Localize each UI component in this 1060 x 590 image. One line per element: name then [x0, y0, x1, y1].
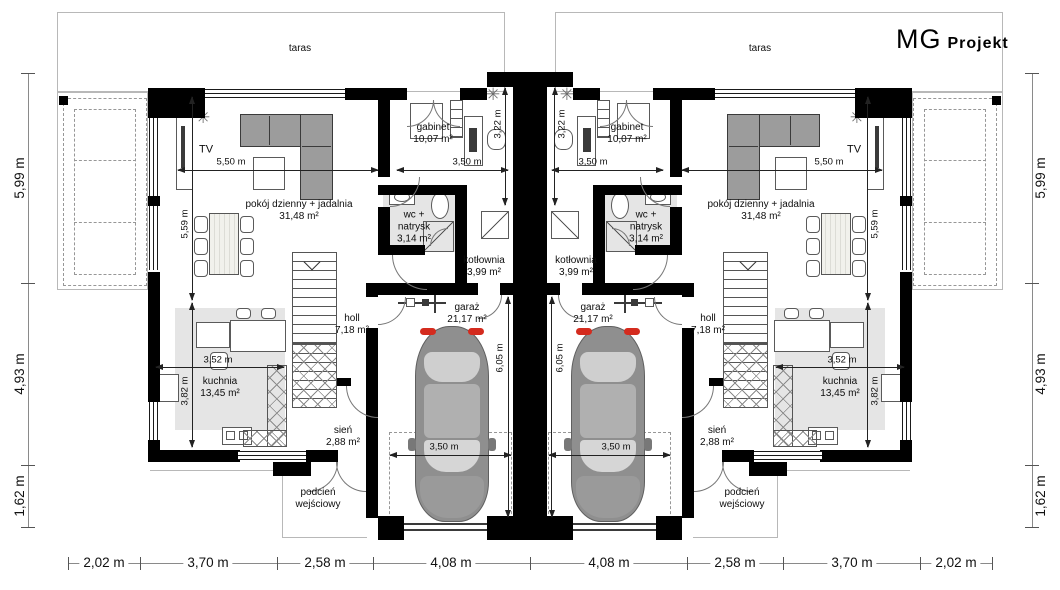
dim-label: 3,52 m: [203, 354, 232, 365]
kitchen-counter: [830, 322, 864, 348]
dim-label: 6,05 m: [554, 343, 565, 372]
bar-stool: [784, 308, 799, 319]
wall: [682, 328, 694, 518]
heater-star-icon: ✳: [560, 86, 574, 103]
wall: [656, 516, 682, 540]
dim-tick: [1025, 73, 1039, 74]
computer: [583, 128, 591, 152]
dim-label: 3,22 m: [556, 109, 567, 138]
wall: [460, 88, 487, 100]
bottom-dim-label: 3,70 m: [183, 555, 232, 571]
dim-tick: [140, 557, 141, 570]
gas-meter-icon: [631, 299, 638, 306]
wall: [378, 100, 390, 177]
garage-door: [402, 529, 487, 531]
garage-door: [573, 523, 658, 525]
window: [149, 118, 158, 196]
room-label-taras: taras: [749, 43, 771, 55]
sofa-seam: [302, 146, 331, 147]
car-taillight: [468, 328, 484, 335]
dining-chair: [194, 238, 208, 255]
dimension-line: [390, 455, 511, 456]
dining-chair: [852, 260, 866, 277]
room-label-holl: holl7,18 m²: [691, 313, 725, 337]
unit-graphics: ✳ ✳: [530, 0, 1060, 590]
dining-chair: [194, 216, 208, 233]
wall: [345, 88, 407, 100]
wall: [378, 207, 390, 247]
side-dim-label: 4,93 m: [1033, 351, 1049, 396]
wall: [378, 245, 425, 255]
side-dim-label: 4,93 m: [12, 351, 28, 396]
dim-tick: [373, 557, 374, 570]
dim-label: 5,59 m: [179, 209, 190, 238]
room-label-kuchnia: kuchnia13,45 m²: [820, 376, 859, 400]
room-label-kotlownia: kotłownia3,99 m²: [555, 255, 597, 279]
window: [149, 402, 158, 440]
bar-stool: [809, 308, 824, 319]
wall: [148, 312, 160, 402]
dining-chair: [806, 260, 820, 277]
room-label-kotlownia: kotłownia3,99 m²: [463, 255, 505, 279]
dimension-line: [192, 303, 193, 447]
car-mirror: [408, 438, 416, 451]
bottom-dim-label: 2,58 m: [710, 555, 759, 571]
wall: [749, 462, 787, 476]
dim-tick: [21, 283, 35, 284]
sink-bowl: [226, 431, 235, 440]
sofa-seam: [269, 116, 270, 145]
dim-tick: [920, 557, 921, 570]
gas-meter-icon: [434, 292, 436, 313]
wall: [500, 283, 513, 295]
floor-plan-canvas: ✳ ✳: [0, 0, 1060, 590]
side-dim-line-left: [28, 73, 29, 527]
dim-tick: [21, 73, 35, 74]
coffee-table: [253, 157, 285, 190]
wall: [273, 462, 311, 476]
pergola-dashed-line: [924, 160, 986, 161]
computer: [469, 128, 477, 152]
dim-label: 3,82 m: [869, 376, 880, 405]
pergola-post: [59, 96, 68, 105]
dim-tick: [68, 557, 69, 570]
dining-chair: [194, 260, 208, 277]
window: [205, 89, 345, 98]
toilet: [611, 192, 629, 219]
wall: [378, 516, 404, 540]
dim-tick: [992, 557, 993, 570]
car-top-view: [415, 326, 489, 522]
mg-projekt-logo: MG Projekt: [896, 24, 1009, 55]
wall: [148, 450, 240, 462]
party-wall: [530, 72, 547, 530]
room-label-sien: sień2,88 m²: [326, 425, 360, 449]
unit-graphics: ✳ ✳: [0, 0, 530, 590]
side-dim-line-right: [1032, 73, 1033, 527]
wall: [306, 450, 338, 462]
room-label-garaz: garaż21,17 m²: [573, 302, 612, 326]
room-label-kuchnia: kuchnia13,45 m²: [200, 376, 239, 400]
dimension-line: [552, 170, 663, 171]
corner-sofa: [727, 114, 760, 200]
toilet: [431, 192, 449, 219]
burner-icon: [884, 390, 890, 396]
garage-door: [402, 523, 487, 525]
window: [238, 451, 306, 460]
bottom-dim-label: 3,70 m: [827, 555, 876, 571]
dimension-line: [867, 97, 868, 300]
window: [149, 206, 158, 270]
door-arc: [682, 386, 714, 418]
dimension-line: [156, 367, 284, 368]
car-roof: [424, 384, 480, 438]
corner-sofa: [300, 114, 333, 200]
pergola-dashed-line: [924, 222, 986, 223]
bar-stool: [261, 308, 276, 319]
stairs-lower-hatched: [723, 344, 768, 408]
pergola-post: [992, 96, 1001, 105]
room-label-pokoj: pokój dzienny + jadalnia31,48 m²: [245, 199, 352, 223]
gas-meter-icon: [624, 292, 626, 313]
stairs-lower-hatched: [292, 344, 337, 408]
window: [902, 118, 911, 196]
kitchen-island: [230, 320, 286, 352]
dim-tick: [1025, 283, 1039, 284]
car-mirror: [564, 438, 572, 451]
dim-tick: [1025, 465, 1039, 466]
dining-table: [821, 213, 851, 275]
bar-stool: [236, 308, 251, 319]
door-arc: [654, 297, 682, 325]
dim-label: 5,50 m: [216, 156, 245, 167]
wall: [487, 516, 530, 540]
wall: [337, 378, 351, 386]
dimension-line: [867, 303, 868, 447]
dim-tick: [530, 557, 531, 570]
wall: [709, 378, 723, 386]
sofa-seam: [790, 116, 791, 145]
car-mirror: [644, 438, 652, 451]
dim-label: 3,22 m: [492, 109, 503, 138]
dim-label: 3,82 m: [179, 376, 190, 405]
taras-outline: [57, 12, 505, 92]
sofa-seam: [729, 146, 758, 147]
wall: [366, 283, 378, 297]
pergola-dashed-line: [74, 160, 136, 161]
wall: [722, 450, 754, 462]
wall: [653, 88, 715, 100]
side-dim-label: 5,99 m: [12, 155, 28, 200]
bottom-dim-label: 4,08 m: [426, 555, 475, 571]
coffee-table: [775, 157, 807, 190]
boiler-symbol: [551, 211, 579, 239]
burner-icon: [161, 390, 167, 396]
car-rear-window: [580, 352, 636, 382]
dimension-line: [554, 88, 555, 205]
room-label-holl: holl7,18 m²: [335, 313, 369, 337]
dim-label: 6,05 m: [494, 343, 505, 372]
wall: [148, 272, 160, 314]
logo-projekt-text: Projekt: [948, 35, 1009, 53]
window: [715, 89, 855, 98]
burner-icon: [893, 378, 899, 384]
car-taillight: [576, 328, 592, 335]
car-mirror: [488, 438, 496, 451]
dim-tick: [21, 465, 35, 466]
dim-label: 3,52 m: [827, 354, 856, 365]
podcien-outline: [693, 537, 778, 538]
burner-icon: [161, 378, 167, 384]
wall: [855, 88, 912, 118]
burner-icon: [170, 390, 176, 396]
window: [902, 206, 911, 270]
car-top-view: [571, 326, 645, 522]
bottom-dim-label: 2,02 m: [79, 555, 128, 571]
dimension-line: [505, 88, 506, 205]
dining-chair: [240, 238, 254, 255]
tv-screen: [875, 126, 879, 168]
side-dim-label: 1,62 m: [1033, 473, 1049, 518]
dimension-line: [549, 455, 670, 456]
burner-icon: [884, 378, 890, 384]
room-label-pokoj: pokój dzienny + jadalnia31,48 m²: [707, 199, 814, 223]
door-arc: [346, 386, 378, 418]
room-label-wc: wc +natrysk3,14 m²: [629, 209, 663, 244]
dim-label: 5,59 m: [869, 209, 880, 238]
wall: [635, 245, 682, 255]
wall: [820, 450, 912, 462]
bottom-dim-label: 2,58 m: [300, 555, 349, 571]
room-label-garaz: garaż21,17 m²: [447, 302, 486, 326]
kitchen-island: [774, 320, 830, 352]
dining-chair: [806, 238, 820, 255]
dimension-line: [192, 97, 193, 300]
kitchen-counter: [196, 322, 230, 348]
room-label-podcien: podcieńwejściowy: [295, 487, 340, 511]
burner-icon: [893, 390, 899, 396]
dim-tick: [1025, 527, 1039, 528]
gas-meter-icon: [422, 299, 429, 306]
cabinet-hatched: [243, 430, 287, 447]
garage-door: [573, 529, 658, 531]
bottom-dim-label: 4,08 m: [584, 555, 633, 571]
window: [754, 451, 822, 460]
wall: [148, 88, 205, 118]
room-label-gabinet: gabinet10,07 m²: [413, 122, 452, 146]
wall: [366, 328, 378, 518]
wall: [670, 207, 682, 247]
room-label-podcien: podcieńwejściowy: [719, 487, 764, 511]
burner-icon: [170, 378, 176, 384]
car-roof: [580, 384, 636, 438]
side-dim-label: 1,62 m: [12, 473, 28, 518]
dining-chair: [240, 260, 254, 277]
window: [902, 402, 911, 440]
dim-label: 5,50 m: [814, 156, 843, 167]
car-rear-window: [424, 352, 480, 382]
car-taillight: [420, 328, 436, 335]
dimension-line: [551, 297, 552, 517]
gas-meter-icon: [406, 298, 415, 307]
dim-tick: [277, 557, 278, 570]
wall: [900, 196, 912, 206]
dim-tick: [687, 557, 688, 570]
door-arc: [378, 297, 406, 325]
dimension-line: [178, 170, 378, 171]
dining-chair: [852, 216, 866, 233]
dining-table: [209, 213, 239, 275]
tv-label: TV: [199, 144, 213, 157]
wall: [573, 88, 600, 100]
dim-label: 3,50 m: [452, 156, 481, 167]
wall: [455, 185, 467, 253]
wall: [148, 196, 160, 206]
tv-screen: [181, 126, 185, 168]
cabinet-hatched: [773, 430, 817, 447]
room-label-gabinet: gabinet10,07 m²: [607, 122, 646, 146]
wall: [670, 100, 682, 177]
boiler-symbol: [481, 211, 509, 239]
heater-star-icon: ✳: [486, 86, 500, 103]
party-wall: [513, 72, 530, 530]
dimension-line: [508, 297, 509, 517]
logo-mg-text: MG: [896, 24, 942, 55]
car-taillight: [624, 328, 640, 335]
dimension-line: [776, 367, 904, 368]
wall: [530, 516, 573, 540]
tv-label: TV: [847, 144, 861, 157]
dimension-line: [397, 170, 508, 171]
dim-label: 3,50 m: [578, 156, 607, 167]
wall: [900, 272, 912, 314]
pergola-dashed-inner: [74, 109, 136, 275]
pergola-dashed-line: [74, 222, 136, 223]
dining-chair: [852, 238, 866, 255]
gas-meter-icon: [645, 298, 654, 307]
room-label-sien: sień2,88 m²: [700, 425, 734, 449]
room-label-wc: wc +natrysk3,14 m²: [397, 209, 431, 244]
dim-tick: [21, 527, 35, 528]
room-label-taras: taras: [289, 43, 311, 55]
wall: [547, 283, 560, 295]
wall: [682, 283, 694, 297]
dim-tick: [783, 557, 784, 570]
dimension-line: [682, 170, 882, 171]
wall: [900, 312, 912, 402]
pergola-dashed-inner: [924, 109, 986, 275]
dim-label: 3,50 m: [601, 441, 630, 452]
wall: [593, 185, 605, 253]
podcien-outline: [282, 537, 367, 538]
side-dim-label: 5,99 m: [1033, 155, 1049, 200]
bottom-dim-label: 2,02 m: [931, 555, 980, 571]
sink-bowl: [825, 431, 834, 440]
dim-label: 3,50 m: [429, 441, 458, 452]
